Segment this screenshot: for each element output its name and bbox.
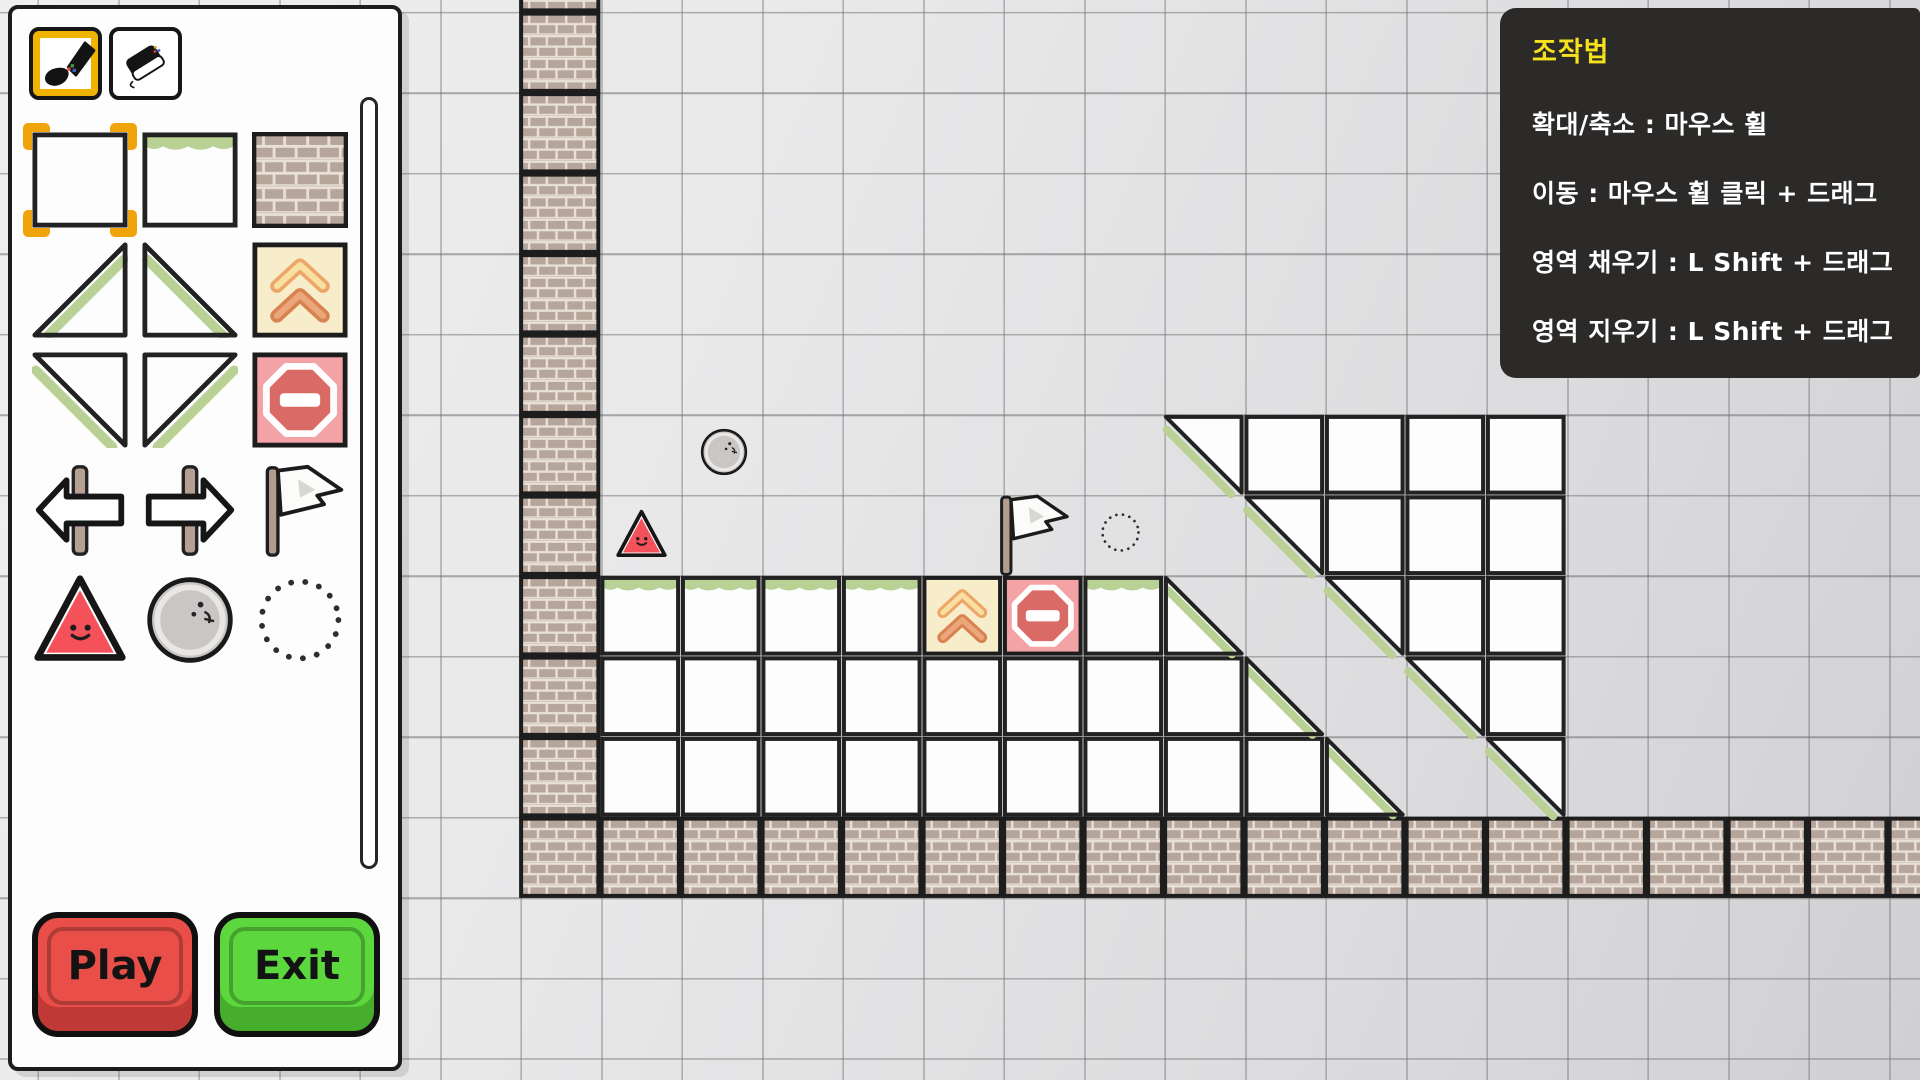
level-slope-tile[interactable] (1407, 658, 1483, 735)
palette-item-tile-blank[interactable] (32, 132, 128, 228)
level-brick-tile[interactable] (521, 577, 598, 654)
level-white-tile[interactable] (1005, 658, 1081, 734)
level-white-tile[interactable] (1327, 497, 1403, 573)
level-jump-pad-tile[interactable] (924, 578, 1000, 654)
level-brick-tile[interactable] (1729, 819, 1806, 896)
level-brick-tile[interactable] (521, 497, 598, 574)
level-brick-tile[interactable] (682, 819, 759, 896)
palette-item-flag[interactable] (252, 462, 348, 558)
palette-item-slope-desc[interactable] (142, 242, 238, 338)
exit-button[interactable]: Exit (214, 912, 380, 1037)
rock-icon (142, 572, 238, 668)
palette-item-stop[interactable] (252, 352, 348, 448)
level-white-tile[interactable] (1166, 739, 1242, 815)
arrow-right-icon (142, 462, 238, 558)
level-object-watermelon[interactable] (618, 512, 665, 555)
level-slope-tile[interactable] (1246, 497, 1322, 574)
level-white-tile[interactable] (924, 739, 1000, 815)
palette-item-pad[interactable] (252, 242, 348, 338)
level-brick-tile[interactable] (1890, 819, 1920, 896)
level-editor-root: 조작법 확대/축소 : 마우스 휠이동 : 마우스 휠 클릭 + 드래그영역 채… (0, 0, 1920, 1080)
tile-grass-icon (142, 132, 238, 228)
level-brick-tile[interactable] (1165, 819, 1242, 896)
level-brick-tile[interactable] (763, 819, 840, 896)
level-white-tile[interactable] (1246, 739, 1322, 815)
tile-palette (32, 132, 348, 668)
level-grass-tile[interactable] (1085, 578, 1161, 654)
level-slope-tile[interactable] (1327, 739, 1403, 815)
palette-item-tile-grass[interactable] (142, 132, 238, 228)
level-object-rock[interactable] (702, 430, 746, 474)
level-brick-tile[interactable] (521, 738, 598, 815)
selection-bracket (23, 210, 50, 237)
level-stop-tile[interactable] (1005, 578, 1081, 654)
level-white-tile[interactable] (602, 739, 678, 815)
level-white-tile[interactable] (1488, 497, 1564, 573)
level-slope-tile[interactable] (1246, 658, 1322, 734)
selection-bracket (110, 123, 137, 150)
flag-icon (252, 462, 348, 558)
play-button[interactable]: Play (32, 912, 198, 1037)
level-object-dotted-circle[interactable] (1103, 515, 1139, 551)
level-brick-tile[interactable] (521, 416, 598, 493)
level-brick-tile[interactable] (521, 255, 598, 332)
level-brick-tile[interactable] (521, 658, 598, 735)
help-line: 영역 채우기 : L Shift + 드래그 (1532, 243, 1894, 279)
level-slope-tile[interactable] (1327, 578, 1403, 655)
palette-item-slope-asc[interactable] (32, 242, 128, 338)
level-brick-tile[interactable] (521, 0, 598, 10)
slope-asc-icon (32, 242, 128, 338)
level-white-tile[interactable] (1488, 658, 1564, 734)
level-white-tile[interactable] (683, 739, 759, 815)
level-white-tile[interactable] (844, 739, 920, 815)
help-line: 확대/축소 : 마우스 휠 (1532, 105, 1894, 141)
palette-item-arrow-left[interactable] (32, 462, 128, 558)
level-white-tile[interactable] (1005, 739, 1081, 815)
help-panel: 조작법 확대/축소 : 마우스 휠이동 : 마우스 휠 클릭 + 드래그영역 채… (1500, 8, 1920, 378)
level-slope-tile[interactable] (1166, 417, 1242, 494)
palette-item-slope-inv-asc[interactable] (142, 352, 238, 448)
level-white-tile[interactable] (1246, 417, 1322, 493)
level-white-tile[interactable] (1488, 578, 1564, 654)
level-grass-tile[interactable] (683, 578, 759, 654)
level-brick-tile[interactable] (1568, 819, 1645, 896)
arrow-left-icon (32, 462, 128, 558)
tile-brick-icon (252, 132, 348, 228)
help-title: 조작법 (1532, 30, 1894, 69)
level-white-tile[interactable] (1085, 739, 1161, 815)
level-brick-tile[interactable] (1407, 819, 1484, 896)
level-white-tile[interactable] (683, 658, 759, 734)
level-slope-tile[interactable] (1488, 739, 1564, 816)
level-white-tile[interactable] (763, 739, 839, 815)
pad-icon (252, 242, 348, 338)
eraser-tool-button[interactable] (109, 27, 182, 100)
level-brick-tile[interactable] (521, 175, 598, 252)
level-brick-tile[interactable] (1648, 819, 1725, 896)
level-brick-tile[interactable] (1085, 819, 1162, 896)
slope-inv-desc-icon (32, 352, 128, 448)
dotted-circle-icon (252, 572, 348, 668)
stop-icon (252, 352, 348, 448)
level-brick-tile[interactable] (521, 94, 598, 171)
level-brick-tile[interactable] (1326, 819, 1403, 896)
level-brick-tile[interactable] (924, 819, 1001, 896)
level-white-tile[interactable] (1085, 658, 1161, 734)
level-grass-tile[interactable] (763, 578, 839, 654)
level-white-tile[interactable] (1488, 417, 1564, 493)
watermelon-icon (32, 572, 128, 668)
eraser-icon (113, 31, 178, 96)
level-brick-tile[interactable] (521, 819, 598, 896)
level-white-tile[interactable] (1407, 417, 1483, 493)
brush-icon (33, 31, 98, 96)
level-brick-tile[interactable] (521, 14, 598, 91)
palette-item-slope-inv-desc[interactable] (32, 352, 128, 448)
level-brick-tile[interactable] (843, 819, 920, 896)
level-grass-tile[interactable] (844, 578, 920, 654)
selection-bracket (23, 123, 50, 150)
level-white-tile[interactable] (1407, 578, 1483, 654)
slope-inv-asc-icon (142, 352, 238, 448)
level-white-tile[interactable] (1407, 497, 1483, 573)
level-object-flag[interactable] (1002, 496, 1067, 574)
level-white-tile[interactable] (844, 658, 920, 734)
level-brick-tile[interactable] (521, 336, 598, 413)
palette-scrollbar[interactable] (360, 97, 378, 869)
level-white-tile[interactable] (1327, 417, 1403, 493)
level-grass-tile[interactable] (602, 578, 678, 654)
help-line: 이동 : 마우스 휠 클릭 + 드래그 (1532, 174, 1894, 210)
action-buttons: Play Exit (32, 912, 380, 1037)
level-white-tile[interactable] (763, 658, 839, 734)
level-brick-tile[interactable] (1809, 819, 1886, 896)
slope-desc-icon (142, 242, 238, 338)
help-line: 영역 지우기 : L Shift + 드래그 (1532, 312, 1894, 348)
level-brick-tile[interactable] (602, 819, 679, 896)
level-brick-tile[interactable] (1487, 819, 1564, 896)
help-lines: 확대/축소 : 마우스 휠이동 : 마우스 휠 클릭 + 드래그영역 채우기 :… (1532, 105, 1894, 348)
level-white-tile[interactable] (924, 658, 1000, 734)
palette-item-tile-brick[interactable] (252, 132, 348, 228)
palette-item-dotted-circle[interactable] (252, 572, 348, 668)
level-white-tile[interactable] (1166, 658, 1242, 734)
level-brick-tile[interactable] (1246, 819, 1323, 896)
palette-item-arrow-right[interactable] (142, 462, 238, 558)
level-white-tile[interactable] (602, 658, 678, 734)
brush-tool-button[interactable] (29, 27, 102, 100)
selection-bracket (110, 210, 137, 237)
palette-item-rock[interactable] (142, 572, 238, 668)
level-brick-tile[interactable] (1004, 819, 1081, 896)
tool-panel: Play Exit (8, 5, 402, 1071)
level-slope-tile[interactable] (1166, 578, 1242, 654)
palette-item-watermelon[interactable] (32, 572, 128, 668)
